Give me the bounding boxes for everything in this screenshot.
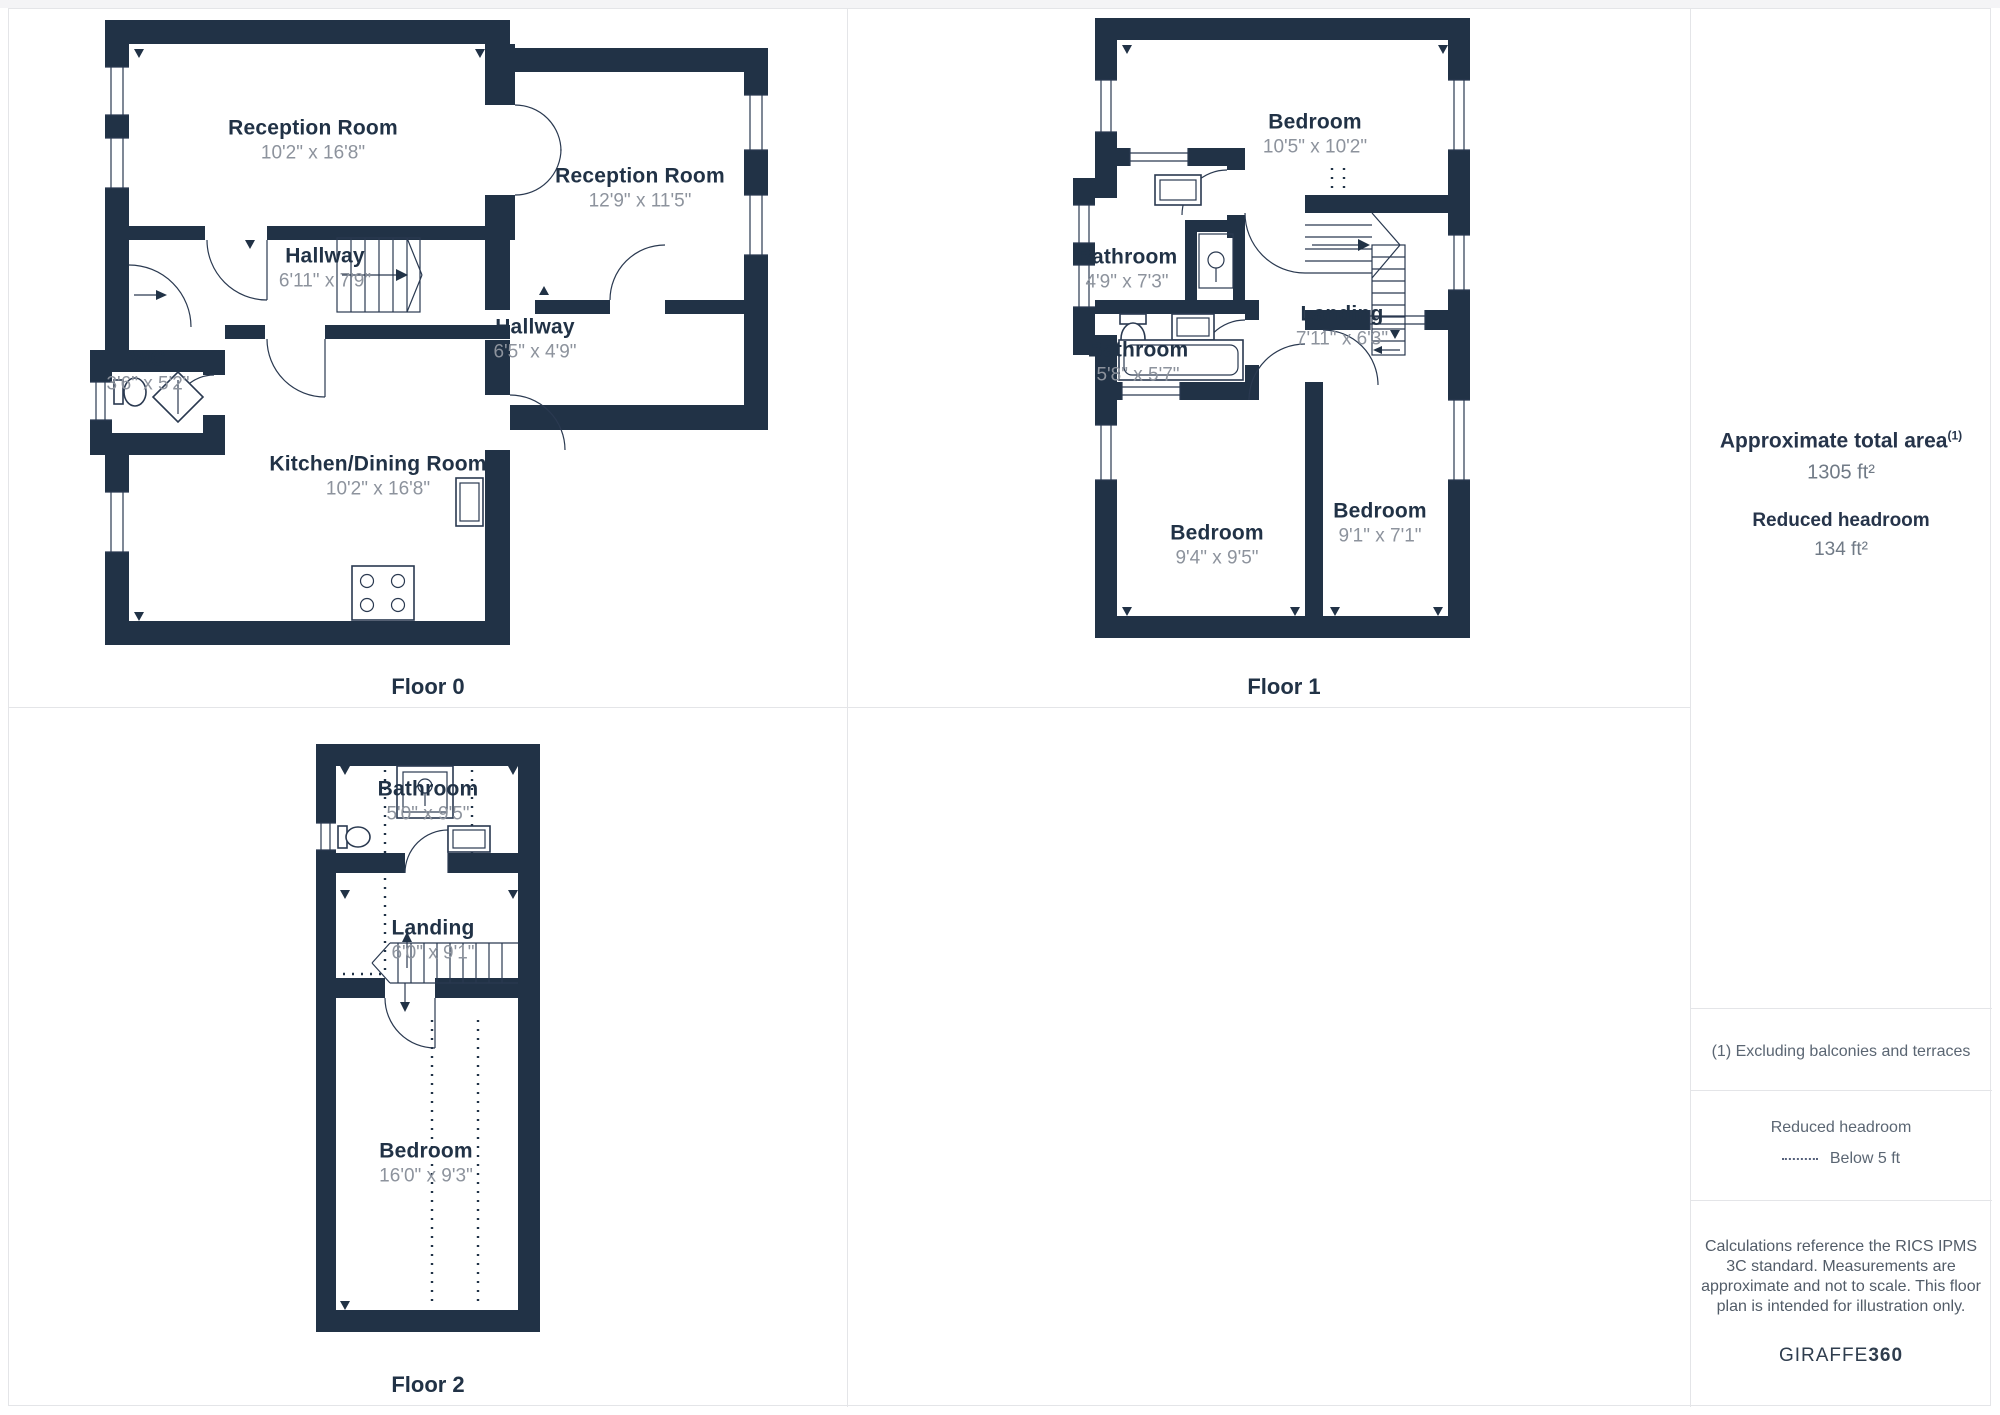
room-name: Reception Room [555,165,725,187]
room-dims: 5'0" x 9'5" [378,805,479,824]
total-area-title: Approximate total area(1) [1720,429,1962,454]
floor-2-label: Floor 2 [391,1372,464,1398]
room-label-reception-room-2: Reception Room 12'9" x 11'5" [555,165,725,210]
sidebar-divider-2 [1690,1090,1992,1091]
brand-suffix: 360 [1868,1345,1903,1366]
room-dims: 4'9" x 7'3" [1077,273,1178,292]
floor-2-plan [290,730,560,1360]
brand-name: GIRAFFE [1779,1345,1868,1366]
legend-item: Below 5 ft [1830,1150,1900,1168]
room-name: Kitchen/Dining Room [269,453,486,475]
room-label-bedroom-3: Bedroom 9'1" x 7'1" [1333,500,1427,545]
room-label-bathroom-3: Bathroom 5'0" x 9'5" [378,778,479,823]
room-label-landing-2: Landing 6'0" x 9'1" [391,917,474,962]
room-dims: 10'5" x 10'2" [1263,138,1367,157]
room-label-bedroom-1: Bedroom 10'5" x 10'2" [1263,111,1367,156]
floor-0-plan [90,10,780,670]
disclaimer-text: Calculations reference the RICS IPMS 3C … [1699,1237,1983,1317]
room-name: Bathroom [378,778,479,800]
entrance-arrow-icon [134,290,167,300]
room-label-landing-1: Landing 7'11" x 6'3" [1296,303,1388,348]
room-dims: 7'11" x 6'3" [1296,330,1388,349]
room-dims: 10'2" x 16'8" [228,144,398,163]
reduced-headroom-value: 134 ft² [1814,539,1868,561]
room-name: Hallway [493,316,576,338]
total-area-footnote-marker: (1) [1947,429,1962,443]
room-name: Bathroom [1077,246,1178,268]
room-name: Landing [391,917,474,939]
floor-0-label: Floor 0 [391,674,464,700]
room-name: Reception Room [228,117,398,139]
legend-title: Reduced headroom [1771,1119,1912,1137]
room-label-wc: WC 3'6" x 5'2" [106,348,189,393]
room-name: Bathroom [1088,339,1189,361]
total-area-title-text: Approximate total area [1720,430,1948,453]
room-name: Bedroom [1263,111,1367,133]
room-label-hallway-1: Hallway 6'11" x 7'9" [279,245,371,290]
total-area-value: 1305 ft² [1807,462,1875,485]
brand-logo: GIRAFFE360 [1779,1345,1903,1367]
sidebar-divider-1 [1690,1008,1992,1009]
floor-1-label: Floor 1 [1247,674,1320,700]
room-label-bathroom-2: Bathroom 5'8" x 5'7" [1088,339,1189,384]
room-label-bedroom-2: Bedroom 9'4" x 9'5" [1170,522,1264,567]
room-dims: 16'0" x 9'3" [379,1167,473,1186]
room-dims: 5'8" x 5'7" [1088,366,1189,385]
grid-divider-vertical-2 [1690,8,1691,1407]
reduced-headroom-label: Reduced headroom [1752,510,1929,532]
room-name: Landing [1296,303,1388,325]
dotted-line-icon [1782,1158,1818,1160]
room-name: Bedroom [1170,522,1264,544]
sidebar-divider-3 [1690,1200,1992,1201]
room-dims: 12'9" x 11'5" [555,192,725,211]
room-name: WC [106,348,189,370]
room-dims: 6'11" x 7'9" [279,272,371,291]
room-dims: 6'0" x 9'1" [391,944,474,963]
room-name: Bedroom [379,1140,473,1162]
legend-row: Below 5 ft [1782,1150,1900,1168]
floor-2-windows [316,823,336,850]
room-name: Hallway [279,245,371,267]
area-footnote: (1) Excluding balconies and terraces [1712,1043,1971,1061]
room-dims: 10'2" x 16'8" [269,480,486,499]
room-dims: 6'5" x 4'9" [493,343,576,362]
room-label-reception-room-1: Reception Room 10'2" x 16'8" [228,117,398,162]
top-strip [0,0,2000,8]
room-label-kitchen-dining: Kitchen/Dining Room 10'2" x 16'8" [269,453,486,498]
room-label-bathroom-1: Bathroom 4'9" x 7'3" [1077,246,1178,291]
room-name: Bedroom [1333,500,1427,522]
room-label-bedroom-4: Bedroom 16'0" x 9'3" [379,1140,473,1185]
room-dims: 3'6" x 5'2" [106,375,189,394]
room-label-hallway-2: Hallway 6'5" x 4'9" [493,316,576,361]
room-dims: 9'1" x 7'1" [1333,527,1427,546]
grid-divider-horizontal [8,707,1690,708]
room-dims: 9'4" x 9'5" [1170,549,1264,568]
